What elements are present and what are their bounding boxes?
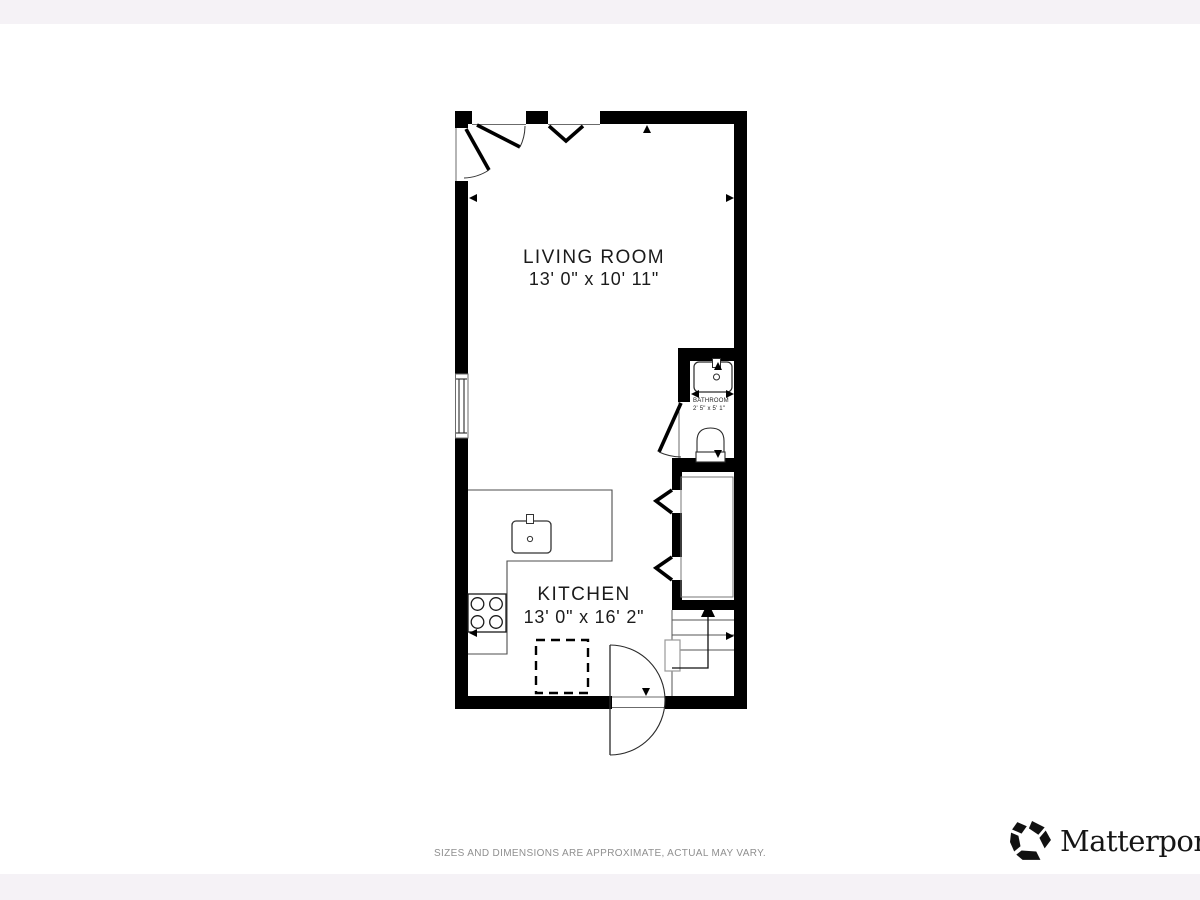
toilet-tank-icon bbox=[696, 452, 725, 462]
toilet-bowl-icon bbox=[697, 428, 724, 453]
stair-treads bbox=[672, 620, 734, 650]
window bbox=[456, 374, 469, 438]
wall-left-upper bbox=[455, 111, 468, 128]
floor-plan: LIVING ROOM 13' 0" x 10' 11" KITCHEN 13'… bbox=[0, 0, 1200, 900]
closet-bifold-door-upper bbox=[656, 490, 672, 513]
double-door-leaves bbox=[549, 126, 583, 141]
bathroom-label: BATHROOM bbox=[693, 398, 729, 404]
window-frame bbox=[456, 374, 469, 438]
stairs-newel bbox=[665, 640, 680, 671]
dim-arrow-bathroom-left bbox=[691, 390, 699, 398]
kitchen-faucet-icon bbox=[527, 515, 534, 524]
bathroom-door-leaf bbox=[659, 403, 681, 452]
wall-left-mid bbox=[455, 181, 468, 374]
living-room-label: LIVING ROOM bbox=[523, 247, 665, 268]
floor-plan-page: { "page": { "background": "#ffffff", "ma… bbox=[0, 0, 1200, 900]
kitchen-label: KITCHEN bbox=[537, 584, 630, 605]
doors bbox=[464, 125, 681, 755]
dim-arrow-right-living bbox=[726, 194, 734, 202]
entry-door-arc bbox=[610, 645, 665, 755]
dim-arrow-top bbox=[643, 125, 651, 133]
matterport-logo-text: Matterport bbox=[1060, 820, 1200, 862]
bathroom-door-arc bbox=[659, 452, 681, 457]
top-door-leaf bbox=[477, 125, 520, 147]
closet-bifold-door-lower bbox=[656, 557, 672, 580]
dim-arrow-entry bbox=[642, 688, 650, 696]
wall-bottom-left bbox=[455, 696, 612, 709]
dishwasher-dashed-icon bbox=[536, 640, 588, 693]
wall-bottom-right bbox=[665, 696, 747, 709]
left-door-arc bbox=[464, 170, 489, 178]
top-door-arc bbox=[520, 126, 525, 147]
matterport-pinwheel-icon bbox=[1010, 820, 1052, 862]
wall-left-lower bbox=[455, 438, 468, 709]
dim-arrow-kitchen-right bbox=[726, 632, 734, 640]
kitchen-dimensions: 13' 0" x 16' 2" bbox=[524, 607, 645, 627]
bathroom-left-wall bbox=[678, 348, 690, 402]
wall-top-right bbox=[600, 111, 747, 124]
wall-right bbox=[734, 111, 747, 709]
closet-interior-outline bbox=[681, 477, 733, 597]
bathroom-dimensions: 2' 5" x 5' 1" bbox=[693, 406, 725, 412]
wall-top-mid bbox=[526, 111, 548, 124]
dim-arrow-left-living bbox=[469, 194, 477, 202]
living-room-dimensions: 13' 0" x 10' 11" bbox=[529, 269, 659, 289]
left-door-leaf bbox=[466, 129, 489, 170]
stairs bbox=[665, 602, 734, 696]
matterport-logo: Matterport® bbox=[1010, 820, 1200, 862]
